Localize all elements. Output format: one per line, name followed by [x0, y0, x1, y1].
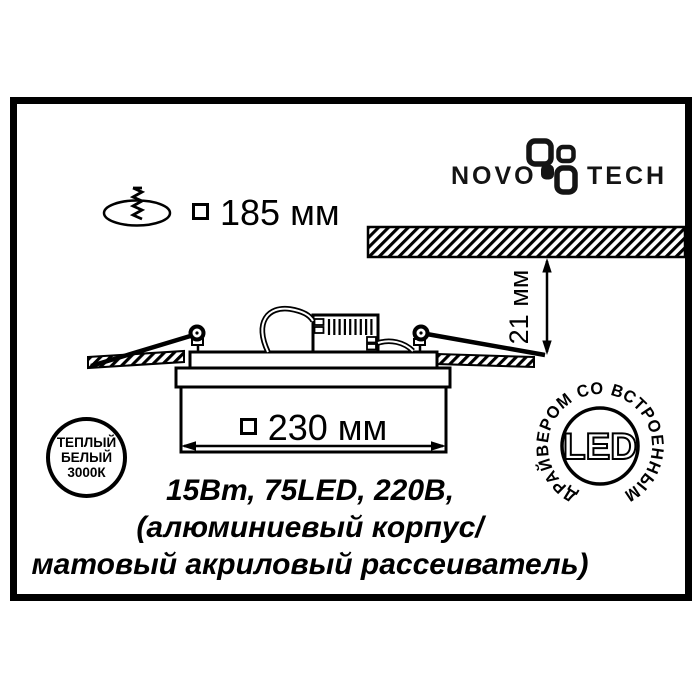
warm-badge-line2: БЕЛЫЙ	[61, 450, 112, 465]
logo-word-novo: NOVO	[451, 162, 537, 191]
square-symbol-icon	[192, 203, 209, 220]
led-badge-center-text: LED	[563, 426, 637, 467]
spec-sheet: ДРАЙВЕРОМ СО ВСТРОЕННЫМ LED NOVO TECH 18…	[0, 0, 700, 700]
right-clip-pivot	[415, 327, 428, 340]
fixture-width-label: 230 мм	[181, 409, 446, 447]
logo-word-tech: TECH	[587, 162, 667, 191]
depth-dimension-arrow	[542, 258, 551, 355]
left-clip-pivot	[191, 327, 204, 340]
left-wire	[262, 309, 313, 352]
recess-depth-label: 21 мм	[504, 267, 534, 347]
spec-line-power: 15Вт, 75LED, 220В,	[25, 472, 595, 509]
spec-line-diffuser: матовый акриловый рассеиватель)	[25, 546, 595, 583]
right-wire	[378, 341, 413, 351]
cutout-size-label: 185 мм	[192, 194, 340, 232]
spec-text: 15Вт, 75LED, 220В, (алюминиевый корпус/ …	[25, 472, 595, 583]
cutout-size-value: 185 мм	[220, 194, 340, 232]
fixture-width-value: 230 мм	[268, 409, 388, 447]
warm-badge-line1: ТЕПЛЫЙ	[57, 435, 116, 450]
spec-line-housing: (алюминиевый корпус/	[25, 509, 595, 546]
right-ceiling-wing	[437, 354, 534, 367]
driver-box	[313, 315, 378, 352]
square-symbol-icon	[240, 418, 257, 435]
cutout-hole-icon	[104, 188, 170, 226]
fixture-diagram: ДРАЙВЕРОМ СО ВСТРОЕННЫМ LED	[0, 0, 700, 700]
ceiling-section	[368, 227, 685, 257]
